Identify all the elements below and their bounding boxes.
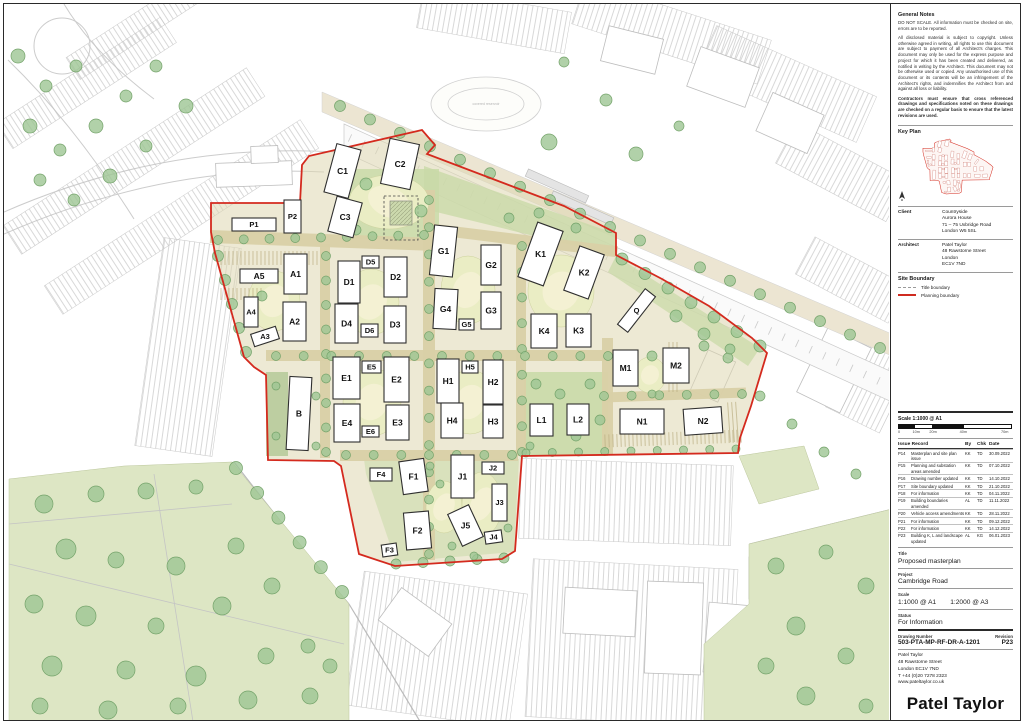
legend-title-boundary: Title boundary <box>898 285 1013 290</box>
building-E2: E2 <box>384 357 409 402</box>
scale-tick: 70m <box>1001 430 1008 434</box>
building-E1: E1 <box>333 357 360 399</box>
building-G4: G4 <box>433 288 458 329</box>
building-A4: A4 <box>244 297 258 327</box>
building-D2: D2 <box>384 257 407 297</box>
building-D6: D6 <box>361 324 378 337</box>
building-G1: G1 <box>429 225 457 277</box>
issue-record-row: P23Building K, L and landscape updatedAL… <box>898 532 1013 545</box>
issue-record-section: Issue Record By Chk Date P14Masterplan a… <box>898 438 1013 544</box>
svg-text:F3: F3 <box>385 545 394 554</box>
building-D1: D1 <box>338 261 360 303</box>
svg-text:E5: E5 <box>367 362 376 371</box>
drawing-sheet: C1C2C3P1P2A5A1A4A2A3D5D1D2D4D6D3G1G2G4G5… <box>3 3 1021 721</box>
svg-text:G5: G5 <box>461 320 471 329</box>
svg-text:J1: J1 <box>458 471 468 481</box>
issue-record-col: Chk <box>977 442 989 447</box>
building-B: B <box>286 376 312 450</box>
svg-text:E6: E6 <box>366 427 375 436</box>
svg-text:F1: F1 <box>409 471 419 481</box>
svg-text:H2: H2 <box>488 377 499 387</box>
svg-text:K4: K4 <box>539 326 550 336</box>
svg-text:F4: F4 <box>377 470 387 479</box>
patel-taylor-logo: Patel Taylor <box>898 694 1013 714</box>
general-notes-para3: Contractors must ensure that cross refer… <box>898 96 1013 119</box>
svg-text:D6: D6 <box>365 326 375 335</box>
masterplan-svg: C1C2C3P1P2A5A1A4A2A3D5D1D2D4D6D3G1G2G4G5… <box>4 4 889 720</box>
svg-text:A2: A2 <box>289 316 300 326</box>
site-boundary-heading: Site Boundary <box>898 276 1013 282</box>
svg-text:D5: D5 <box>366 257 376 266</box>
building-H3: H3 <box>483 405 503 438</box>
svg-text:F2: F2 <box>413 525 423 535</box>
building-F2: F2 <box>403 511 431 550</box>
scale-bar-label: Scale 1:1000 @ A1 <box>898 416 1013 422</box>
svg-text:G4: G4 <box>440 304 452 314</box>
svg-text:H3: H3 <box>488 416 499 426</box>
client-section: Client Countryside Aurora House 71 – 75 … <box>898 206 1013 236</box>
scale-tick: 40m <box>960 430 967 434</box>
issue-record-row: P16Drawing number updatedKKTD14.10.2022 <box>898 474 1013 481</box>
building-E3: E3 <box>386 405 409 440</box>
building-H2: H2 <box>483 360 503 404</box>
architect-line: EC1V 7ND <box>942 262 986 268</box>
issue-record-row: P19Building boundaries amendedALTD11.11.… <box>898 497 1013 510</box>
issue-record-row: P22For informationKKTD14.12.2022 <box>898 524 1013 531</box>
key-plan-map <box>906 137 1010 195</box>
svg-text:D2: D2 <box>390 272 401 282</box>
title-block: General Notes DO NOT SCALE. All informat… <box>890 4 1020 720</box>
firm-line: 48 Rawstorne Street <box>898 660 1013 667</box>
revision-value: P23 <box>995 639 1013 646</box>
architect-line: 48 Rawstorne Street <box>942 249 986 255</box>
building-L1: L1 <box>530 404 553 436</box>
building-D3: D3 <box>384 306 406 343</box>
building-J1: J1 <box>451 455 474 498</box>
architect-label: Architect <box>898 243 942 269</box>
title-boundary-label: Title boundary <box>921 285 950 290</box>
status-label: Status <box>898 613 1013 618</box>
building-E5: E5 <box>362 361 381 373</box>
drawing-number: 503-PTA-MP-RF-DR-A-1201 <box>898 639 980 646</box>
svg-text:K2: K2 <box>579 267 590 277</box>
svg-text:G1: G1 <box>438 246 450 256</box>
site-boundary-legend: Site Boundary Title boundary Planning bo… <box>898 272 1013 298</box>
scale-bar-ticks: 0 10m 20m 40m 70m <box>898 429 1010 435</box>
svg-text:H1: H1 <box>443 376 454 386</box>
client-line: London W5 5SL <box>942 229 991 235</box>
building-N1: N1 <box>620 409 664 434</box>
svg-text:M1: M1 <box>620 363 632 373</box>
building-H4: H4 <box>441 403 463 438</box>
status-field: Status For Information <box>898 609 1013 627</box>
building-G5: G5 <box>459 319 474 330</box>
svg-text:H5: H5 <box>465 362 475 371</box>
svg-text:J2: J2 <box>489 463 497 472</box>
building-P2: P2 <box>284 200 301 233</box>
scale-tick: 0 <box>898 430 900 434</box>
svg-text:E1: E1 <box>341 373 352 383</box>
masterplan-drawing: C1C2C3P1P2A5A1A4A2A3D5D1D2D4D6D3G1G2G4G5… <box>4 4 889 720</box>
status-value: For Information <box>898 619 1013 626</box>
scale-tick: 20m <box>929 430 936 434</box>
building-G3: G3 <box>481 292 501 329</box>
svg-text:J5: J5 <box>461 520 471 530</box>
svg-text:C2: C2 <box>395 159 406 169</box>
issue-record-row: P21For informationKKTD09.12.2022 <box>898 517 1013 524</box>
building-F1: F1 <box>399 458 428 494</box>
planning-boundary-swatch <box>898 294 916 296</box>
client-label: Client <box>898 210 942 236</box>
title-field: Title Proposed masterplan <box>898 547 1013 565</box>
svg-text:L1: L1 <box>537 415 547 425</box>
building-H1: H1 <box>437 359 459 403</box>
building-M2: M2 <box>663 348 689 383</box>
building-D5: D5 <box>362 256 379 268</box>
svg-text:P1: P1 <box>249 220 258 229</box>
svg-text:J4: J4 <box>489 532 498 541</box>
svg-text:N1: N1 <box>637 416 648 426</box>
svg-text:M2: M2 <box>670 360 682 370</box>
svg-text:K1: K1 <box>535 249 546 259</box>
building-L2: L2 <box>567 404 589 435</box>
svg-text:E2: E2 <box>391 374 402 384</box>
svg-text:K3: K3 <box>573 325 584 335</box>
scale-a1: 1:1000 @ A1 <box>898 599 936 606</box>
svg-text:A1: A1 <box>290 269 301 279</box>
svg-text:D3: D3 <box>390 319 401 329</box>
svg-text:P2: P2 <box>288 212 297 221</box>
building-A1: A1 <box>284 254 307 294</box>
svg-text:C1: C1 <box>337 166 348 176</box>
scale-a3: 1:2000 @ A3 <box>950 599 988 606</box>
svg-text:D4: D4 <box>341 318 352 328</box>
building-J2: J2 <box>482 462 504 474</box>
project-label: Project <box>898 572 1013 577</box>
svg-text:N2: N2 <box>698 416 709 426</box>
building-J3: J3 <box>492 484 507 521</box>
firm-address: Patel Taylor 48 Rawstorne Street London … <box>898 649 1013 687</box>
svg-text:E4: E4 <box>342 418 353 428</box>
issue-record-col: Issue Record <box>898 442 965 447</box>
title-label: Title <box>898 551 1013 556</box>
building-D4: D4 <box>335 304 358 343</box>
svg-text:H4: H4 <box>447 415 458 425</box>
scale-tick: 10m <box>913 430 920 434</box>
svg-text:A3: A3 <box>260 332 270 341</box>
key-plan-heading: Key Plan <box>898 129 1013 135</box>
title-boundary-swatch <box>898 287 916 288</box>
svg-text:G2: G2 <box>485 260 497 270</box>
building-G2: G2 <box>481 245 501 285</box>
issue-record-col: By <box>965 442 977 447</box>
key-plan-section: Key Plan <box>898 125 1013 203</box>
issue-record-row: P20Vehicle access amendmentsKKTD28.11.20… <box>898 509 1013 516</box>
firm-line: www.pateltaylor.co.uk <box>898 680 1013 687</box>
general-notes-heading: General Notes <box>898 12 1013 18</box>
general-notes: General Notes DO NOT SCALE. All informat… <box>898 12 1013 122</box>
drawing-number-field: Drawing Number 503-PTA-MP-RF-DR-A-1201 R… <box>898 629 1013 646</box>
issue-record-row: P17Site boundary updatedKKTD21.10.2022 <box>898 482 1013 489</box>
issue-record-header: Issue Record By Chk Date <box>898 442 1013 449</box>
scale-bar-section: Scale 1:1000 @ A1 0 10m 20m 40m 70m <box>898 411 1013 436</box>
building-P1: P1 <box>232 218 276 231</box>
svg-text:E3: E3 <box>392 417 403 427</box>
issue-record-row: P14Masterplan and site plan issueKKTD30.… <box>898 449 1013 462</box>
building-A5: A5 <box>240 269 278 283</box>
building-N2: N2 <box>683 407 723 436</box>
general-notes-para1: DO NOT SCALE. All information must be ch… <box>898 20 1013 31</box>
building-E6: E6 <box>362 426 379 437</box>
building-K3: K3 <box>566 314 591 347</box>
firm-line: London EC1V 7ND <box>898 667 1013 674</box>
svg-text:Q: Q <box>634 306 640 315</box>
architect-section: Architect Patel Taylor 48 Rawstorne Stre… <box>898 239 1013 269</box>
building-E4: E4 <box>334 404 360 442</box>
issue-record-row: P18For informationKKTD04.11.2022 <box>898 489 1013 496</box>
issue-record-rows: P14Masterplan and site plan issueKKTD30.… <box>898 449 1013 544</box>
svg-text:D1: D1 <box>344 277 355 287</box>
general-notes-para2: All disclosed material is subject to cop… <box>898 35 1013 92</box>
scale-label: Scale <box>898 592 1013 597</box>
scale-field: Scale 1:1000 @ A1 1:2000 @ A3 <box>898 588 1013 606</box>
drawing-title: Proposed masterplan <box>898 558 1013 565</box>
north-arrow-icon <box>898 191 906 201</box>
building-J4: J4 <box>484 530 503 544</box>
svg-text:L2: L2 <box>573 414 583 424</box>
building-A2: A2 <box>283 302 306 341</box>
building-F4: F4 <box>370 468 392 481</box>
issue-record-col: Date <box>989 442 1013 447</box>
building-M1: M1 <box>613 350 638 386</box>
svg-text:covered reservoir: covered reservoir <box>472 102 500 106</box>
building-K4: K4 <box>531 314 557 348</box>
svg-text:A5: A5 <box>254 271 265 281</box>
project-field: Project Cambridge Road <box>898 568 1013 586</box>
svg-text:G3: G3 <box>485 305 497 315</box>
svg-text:J3: J3 <box>495 498 503 507</box>
project-name: Cambridge Road <box>898 578 1013 585</box>
issue-record-row: P15Planning and substation areas amended… <box>898 462 1013 475</box>
svg-text:B: B <box>296 408 302 418</box>
building-H5: H5 <box>462 361 478 373</box>
building-F3: F3 <box>381 543 398 557</box>
svg-text:A4: A4 <box>246 307 256 316</box>
svg-text:C3: C3 <box>340 212 351 222</box>
